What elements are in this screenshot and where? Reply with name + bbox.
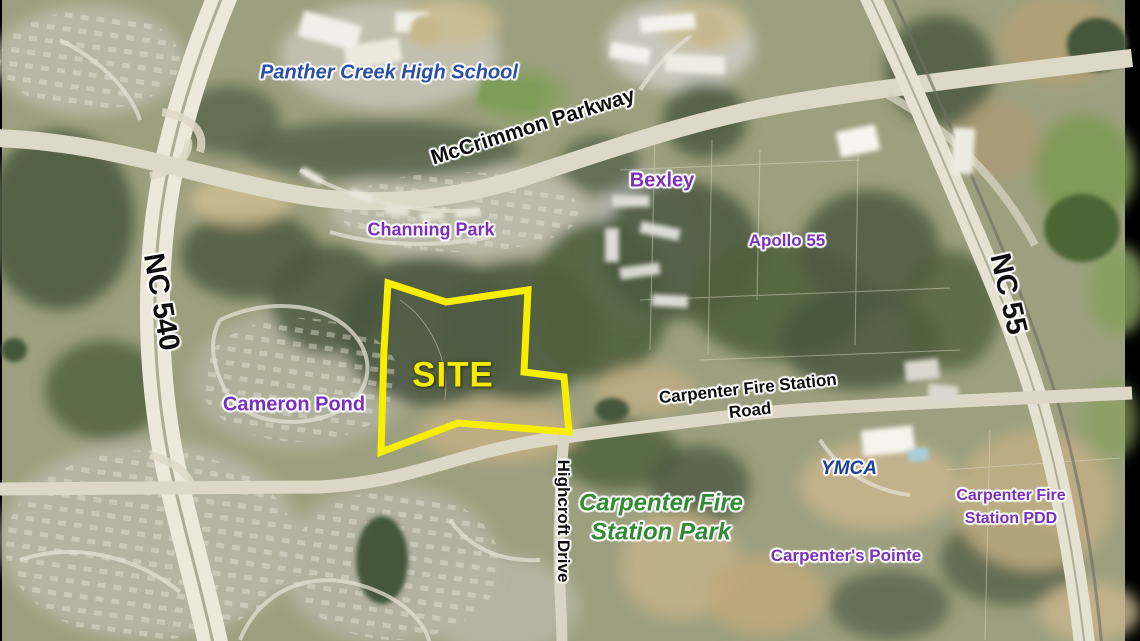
label-carpenter-fire-station-pdd: Carpenter Fire Station PDD (956, 484, 1065, 530)
label-panther-creek-high-school: Panther Creek High School (260, 63, 518, 84)
aerial-map: Panther Creek High School McCrimmon Park… (0, 0, 1140, 641)
label-highcroft-drive: Highcroft Drive (554, 460, 572, 583)
label-carpenters-pointe: Carpenter's Pointe (771, 547, 921, 565)
label-carpenter-fire-station-park: Carpenter Fire Station Park (579, 489, 743, 548)
label-cfs-park-line1: Carpenter Fire (579, 490, 743, 517)
label-ymca: YMCA (821, 459, 877, 479)
label-cfs-park-line2: Station Park (579, 518, 743, 547)
label-site: SITE (412, 358, 494, 395)
label-cfs-pdd-line2: Station PDD (956, 507, 1065, 530)
label-channing-park: Channing Park (367, 221, 494, 240)
label-apollo-55: Apollo 55 (749, 232, 826, 250)
label-cfs-pdd-line1: Carpenter Fire (956, 487, 1065, 504)
label-cameron-pond: Cameron Pond (223, 395, 365, 416)
label-bexley: Bexley (630, 171, 695, 192)
